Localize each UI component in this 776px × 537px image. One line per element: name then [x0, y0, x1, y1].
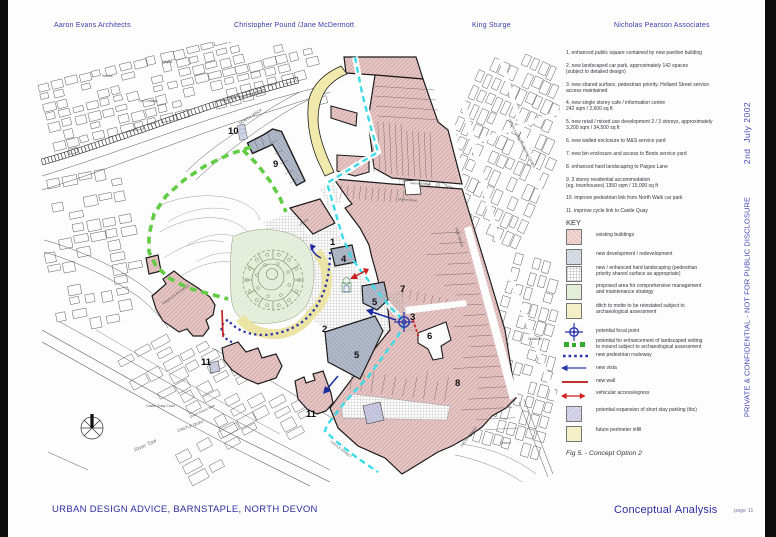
svg-text:River Taw: River Taw — [133, 438, 158, 454]
svg-text:Two Cottage: Two Cottage — [138, 99, 158, 103]
svg-text:CASTLE QUAY: CASTLE QUAY — [177, 419, 205, 433]
svg-text:7: 7 — [400, 284, 405, 295]
svg-text:3: 3 — [410, 312, 415, 323]
svg-text:5: 5 — [354, 350, 360, 361]
svg-text:10: 10 — [228, 126, 239, 137]
svg-text:Church: Church — [500, 441, 511, 445]
svg-text:8: 8 — [455, 378, 460, 389]
svg-text:Queen Anne's Walk: Queen Anne's Walk — [189, 403, 216, 419]
svg-text:11: 11 — [201, 357, 212, 368]
svg-text:1: 1 — [330, 237, 336, 248]
svg-text:6: 6 — [427, 331, 432, 342]
svg-text:4: 4 — [341, 254, 347, 265]
svg-text:5: 5 — [372, 297, 378, 308]
svg-text:CASTLE STREET: CASTLE STREET — [329, 440, 352, 459]
svg-text:2: 2 — [322, 324, 327, 335]
svg-text:11: 11 — [306, 409, 317, 420]
svg-text:Guildhall: Guildhall — [528, 337, 542, 341]
svg-text:Works: Works — [102, 74, 113, 78]
svg-text:9: 9 — [273, 159, 278, 170]
svg-text:Castle Quay Court: Castle Quay Court — [146, 404, 175, 408]
svg-text:Depot: Depot — [162, 60, 173, 64]
